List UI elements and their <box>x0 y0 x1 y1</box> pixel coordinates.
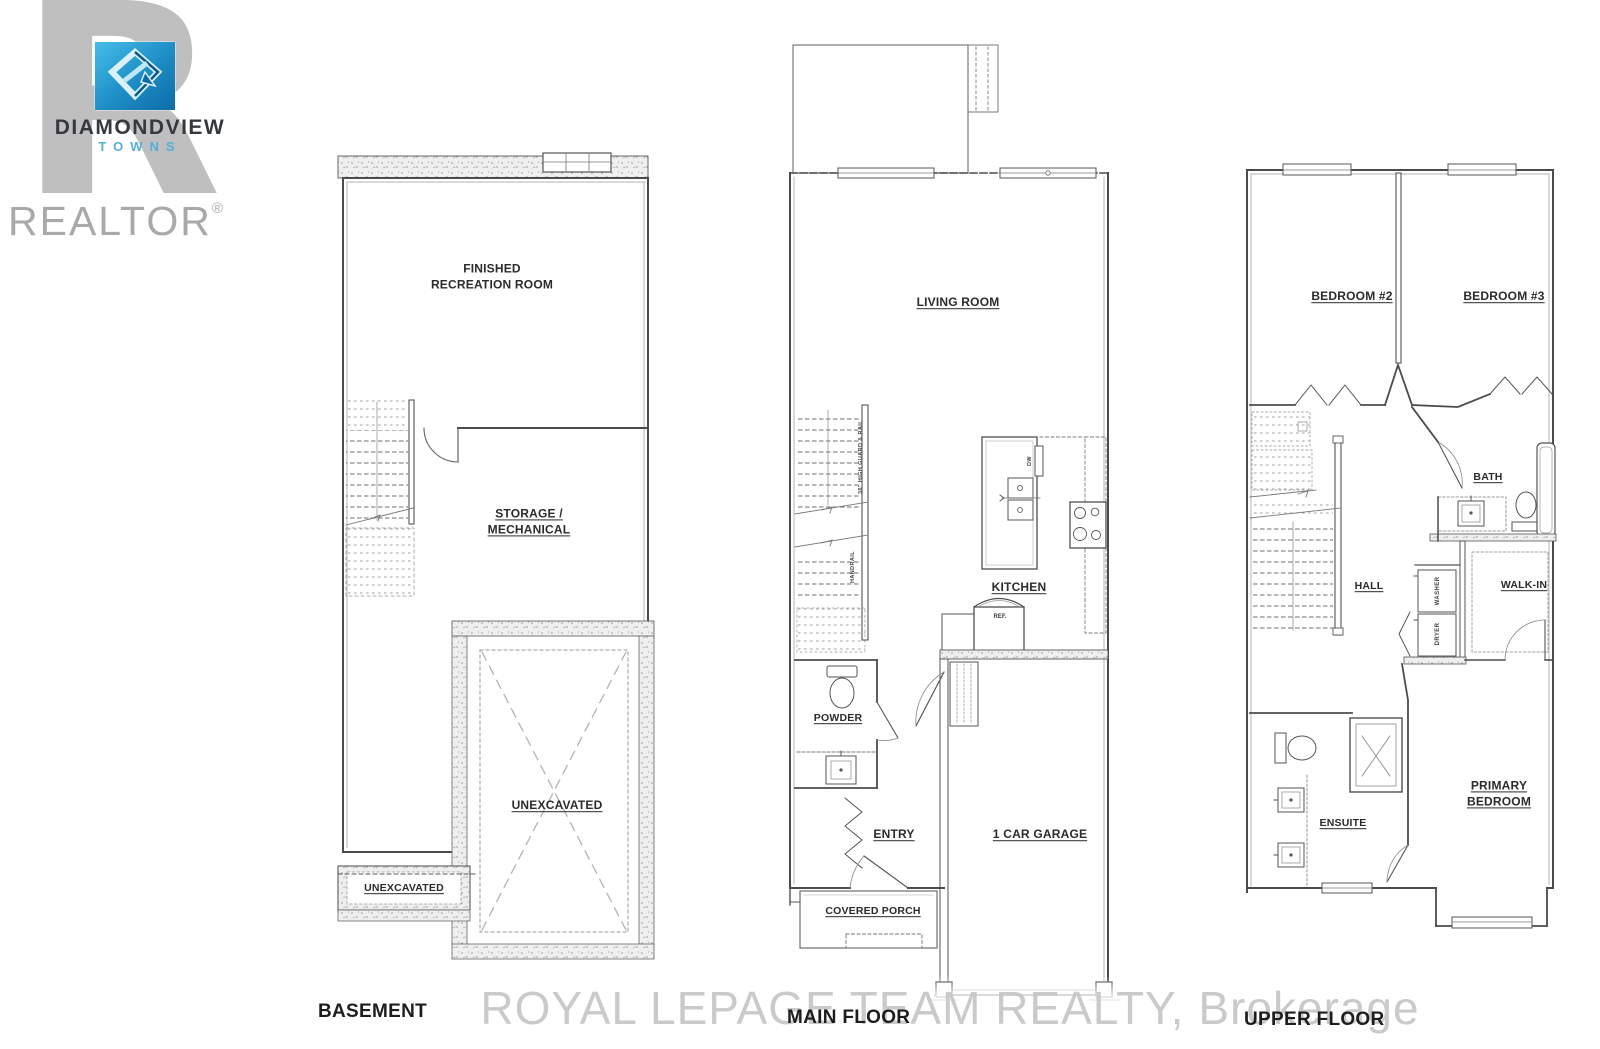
room-label-living-room: LIVING ROOM <box>917 295 1000 311</box>
basement-title: BASEMENT <box>318 1001 427 1023</box>
room-label-ensuite: ENSUITE <box>1320 817 1367 831</box>
stove-icon <box>1070 502 1106 548</box>
brokerage-watermark: ROYAL LEPAGE TEAM REALTY, Brokerage <box>540 975 1360 1041</box>
basement-stairs-icon <box>346 400 414 596</box>
main-floor-plan <box>790 45 1120 1000</box>
room-label-walkin: WALK-IN <box>1501 579 1547 593</box>
toilet-icon <box>1512 492 1540 531</box>
stair-handrail-label: HANDRAIL <box>850 551 856 583</box>
closet-bifold-door <box>1295 385 1361 405</box>
realtor-text: REALTOR <box>8 198 212 244</box>
main-floor-title: MAIN FLOOR <box>787 1007 910 1029</box>
laundry-closet <box>1399 565 1460 656</box>
fridge-label: REF. <box>993 614 1006 620</box>
deck-stairs-icon <box>968 45 998 112</box>
room-label-bedroom3: BEDROOM #3 <box>1463 289 1544 305</box>
brand-subtitle: TOWNS <box>40 139 240 154</box>
upper-floor-title: UPPER FLOOR <box>1244 1009 1385 1031</box>
dishwasher-label: DW <box>1027 456 1033 466</box>
toilet-icon <box>1275 733 1316 763</box>
sink-icon <box>1274 788 1304 812</box>
registered-symbol: ® <box>212 200 225 217</box>
room-label-entry: ENTRY <box>873 827 914 843</box>
door-leaf <box>877 702 898 738</box>
room-label-unexcavated: UNEXCAVATED <box>512 798 603 814</box>
stair-guard-label: 36" HIGH GUARD & RAIL <box>858 420 864 494</box>
floorplan-drawing <box>0 0 1600 1049</box>
bay-window <box>1436 888 1553 928</box>
ensuite-bathroom <box>1250 664 1408 886</box>
basement-window <box>543 153 611 172</box>
diamondview-logo-icon <box>95 42 175 110</box>
fridge-icon <box>942 599 1024 658</box>
room-label-storage: STORAGE / MECHANICAL <box>488 506 571 537</box>
shower-icon <box>1350 718 1402 792</box>
door-leaf <box>1387 845 1408 882</box>
bifold-door <box>845 798 862 868</box>
room-label-porch: COVERED PORCH <box>825 905 920 919</box>
room-label-kitchen: KITCHEN <box>992 580 1047 596</box>
window <box>1448 164 1516 175</box>
room-label-garage: 1 CAR GARAGE <box>993 827 1087 843</box>
dishwasher-icon <box>1035 446 1043 476</box>
sink-icon <box>1458 496 1484 526</box>
deck <box>793 45 968 173</box>
dryer-label: DRYER <box>1435 623 1441 646</box>
upper-floor-plan <box>1247 164 1556 928</box>
sink-icon <box>826 751 856 784</box>
room-label-rec-room: FINISHED RECREATION ROOM <box>431 261 553 292</box>
brand-name: DIAMONDVIEW <box>40 116 240 140</box>
walk-in-closet <box>1465 552 1553 660</box>
sink-icon <box>1274 843 1304 867</box>
room-label-bedroom2: BEDROOM #2 <box>1311 289 1392 305</box>
room-label-hall: HALL <box>1355 580 1384 594</box>
toilet-icon <box>827 666 857 708</box>
bathtub-icon <box>1537 443 1555 537</box>
room-label-unexcavated-strip: UNEXCAVATED <box>364 882 444 896</box>
room-label-bath: BATH <box>1473 471 1502 485</box>
door-arc <box>424 428 458 462</box>
room-label-primary-bedroom: PRIMARY BEDROOM <box>1467 778 1531 809</box>
washer-label: WASHER <box>1435 577 1441 606</box>
kitchen-island <box>982 437 1043 569</box>
floorplan-sheet: R DIAMONDVIEW TOWNS REALTOR® ROYAL LEPAG… <box>0 0 1600 1049</box>
closet-bifold-door <box>1490 377 1552 394</box>
realtor-wordmark: REALTOR® <box>8 198 225 245</box>
closet-shelves <box>1252 412 1310 446</box>
window <box>1283 164 1351 175</box>
front-door-leaf <box>864 856 908 888</box>
room-label-powder: POWDER <box>814 712 862 726</box>
